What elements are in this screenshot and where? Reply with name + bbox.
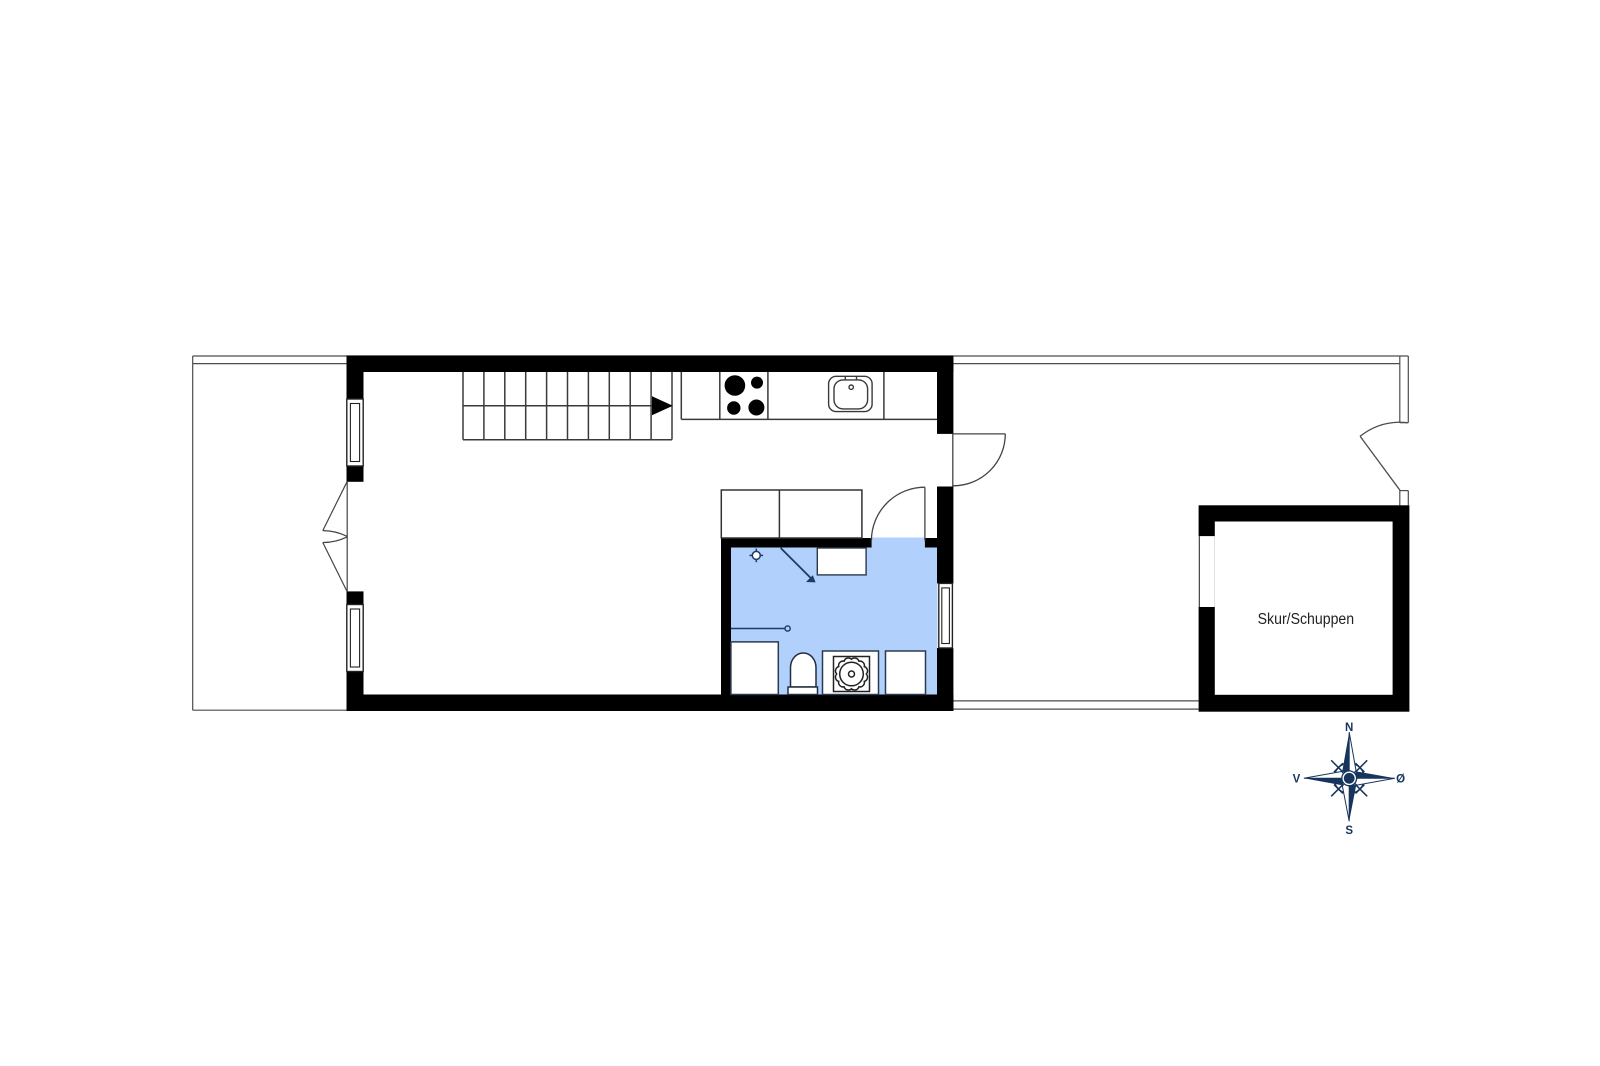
svg-text:S: S bbox=[1345, 825, 1353, 837]
svg-text:Skur/Schuppen: Skur/Schuppen bbox=[1258, 611, 1355, 628]
svg-text:Ø: Ø bbox=[1396, 774, 1405, 786]
svg-text:N: N bbox=[1345, 722, 1353, 734]
svg-text:V: V bbox=[1293, 774, 1301, 786]
